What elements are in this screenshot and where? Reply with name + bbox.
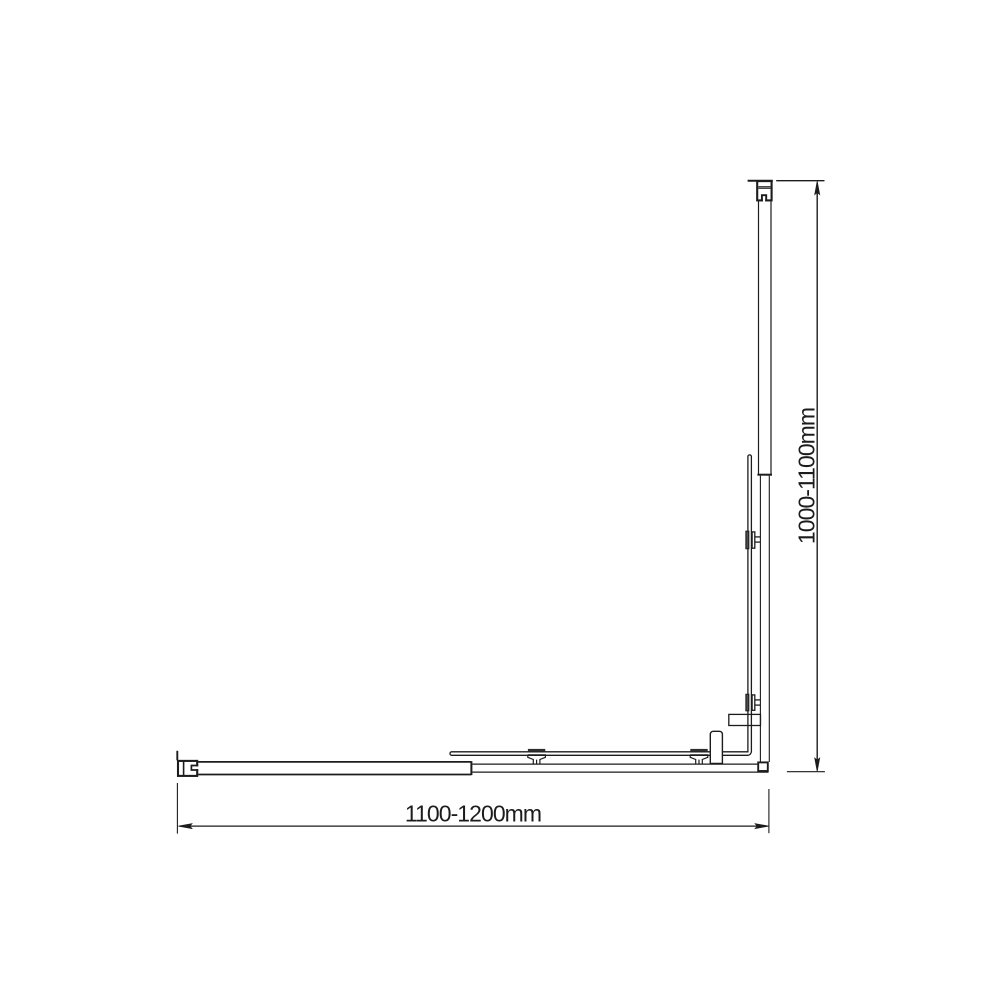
- svg-text:1000-1100mm: 1000-1100mm: [794, 408, 820, 544]
- svg-text:1100-1200mm: 1100-1200mm: [405, 801, 541, 827]
